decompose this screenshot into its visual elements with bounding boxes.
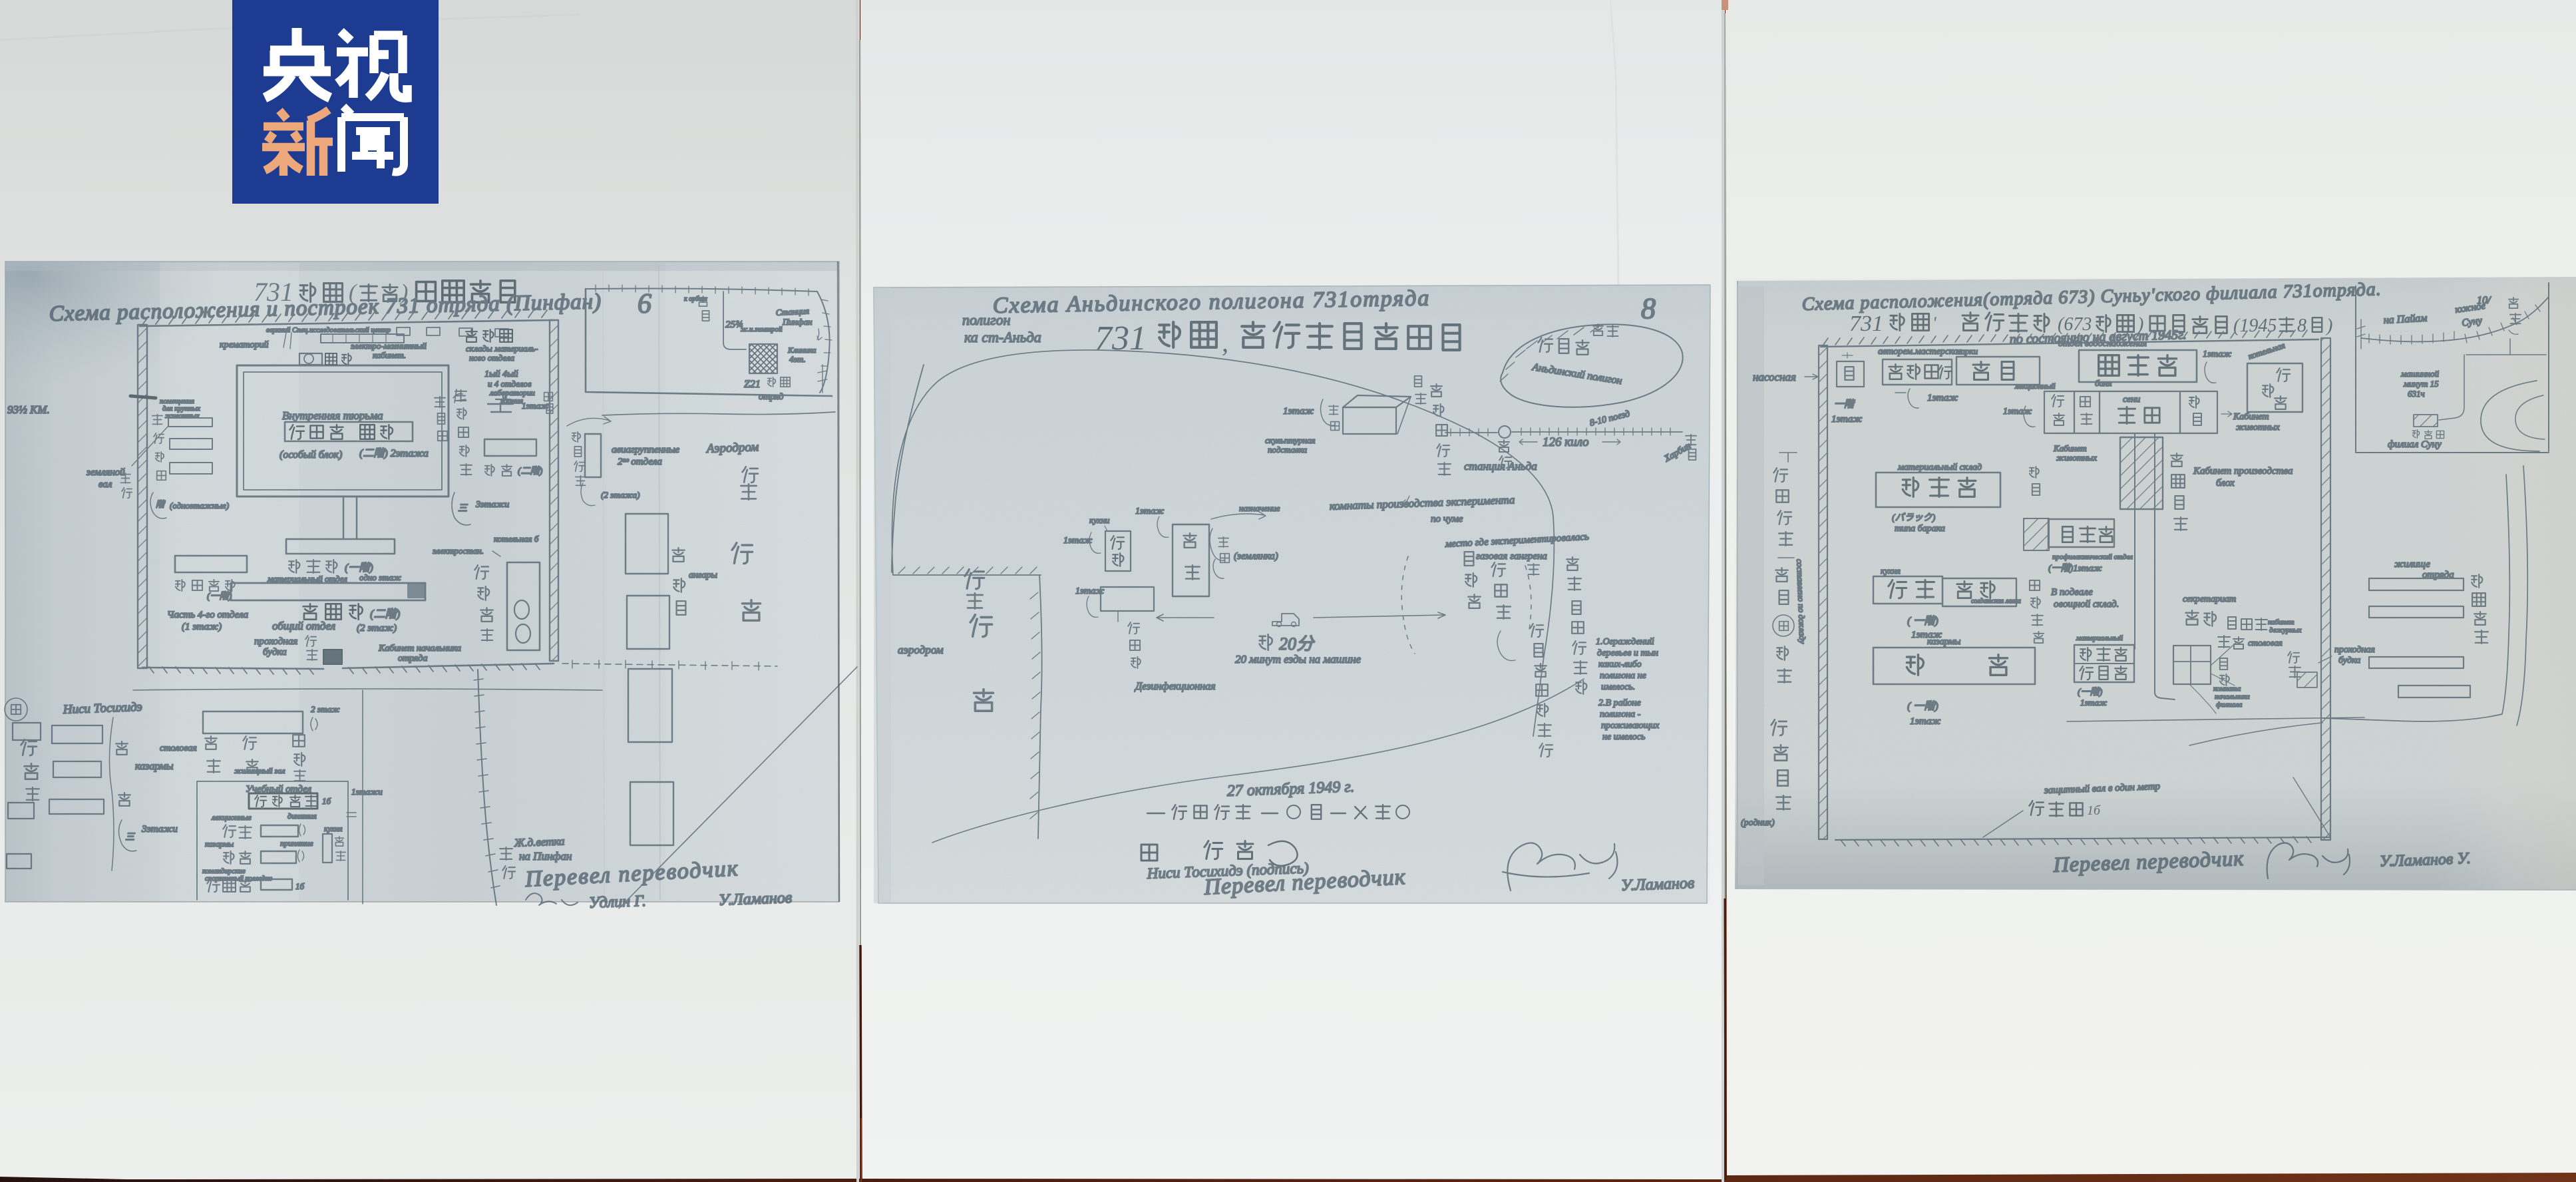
svg-text:( 一階): ( 一階) bbox=[1907, 615, 1938, 627]
svg-text:на Пайам: на Пайам bbox=[2383, 313, 2428, 326]
svg-text:жилище: жилище bbox=[2394, 559, 2430, 570]
svg-text:4эт.: 4эт. bbox=[789, 354, 806, 364]
svg-text:1этаж: 1этаж bbox=[2003, 407, 2032, 417]
svg-text:Дезинфекционная: Дезинфекционная bbox=[1134, 681, 1216, 692]
svg-text:(二階) 2этажа: (二階) 2этажа bbox=[359, 447, 429, 459]
svg-text:лекционный: лекционный bbox=[2014, 381, 2056, 391]
svg-text:( 一階): ( 一階) bbox=[1907, 700, 1938, 712]
svg-text:ного отдела: ного отдела bbox=[469, 353, 515, 363]
svg-text:полигона -: полигона - bbox=[1600, 709, 1641, 719]
svg-text:казармы: казармы bbox=[205, 839, 234, 849]
svg-text:(родник): (родник) bbox=[1741, 818, 1775, 828]
svg-text:склады материаль-: склады материаль- bbox=[466, 343, 538, 353]
svg-text:авиагруппенные: авиагруппенные bbox=[612, 445, 680, 455]
svg-text:Аэродром: Аэродром bbox=[705, 440, 759, 456]
svg-text:2.В районе: 2.В районе bbox=[1598, 698, 1641, 708]
svg-text:У.Ламанов: У.Ламанов bbox=[1620, 875, 1694, 894]
svg-text:котельная б: котельная б bbox=[494, 534, 539, 544]
svg-text:10/: 10/ bbox=[2477, 295, 2491, 306]
svg-text:филиала: филиала bbox=[2216, 701, 2243, 709]
svg-text:насосная: насосная bbox=[1753, 371, 1796, 383]
svg-text:ангары: ангары bbox=[689, 570, 717, 580]
svg-text:Пинфан: Пинфан bbox=[782, 317, 813, 327]
svg-text:Кабинет начальника: Кабинет начальника bbox=[378, 644, 461, 654]
svg-text:ж.и.зимтрой: ж.и.зимтрой bbox=[741, 325, 783, 333]
svg-text:будка: будка bbox=[2338, 656, 2360, 666]
svg-text:三: 三 bbox=[458, 504, 468, 514]
svg-text:1ый 4ый: 1ый 4ый bbox=[484, 369, 518, 379]
svg-text:3этажи: 3этажи bbox=[475, 500, 509, 510]
svg-text:,: , bbox=[1222, 327, 1228, 357]
svg-text:(二階): (二階) bbox=[518, 466, 543, 477]
svg-text:столовая: столовая bbox=[2248, 638, 2283, 648]
svg-text:Станция: Станция bbox=[775, 305, 809, 317]
svg-text:Z21: Z21 bbox=[744, 379, 761, 390]
svg-text:93½ КМ.: 93½ КМ. bbox=[7, 403, 50, 416]
svg-text:кабинет.: кабинет. bbox=[373, 350, 406, 360]
svg-text:отдел водоснабжения: отдел водоснабжения bbox=[2058, 339, 2147, 349]
svg-text:профилактический отдел: профилактический отдел bbox=[2052, 553, 2133, 561]
svg-text:кухня: кухня bbox=[324, 824, 343, 833]
svg-text:авторем.мастерская: авторем.мастерская bbox=[1878, 347, 1962, 357]
svg-text:1этаж: 1этаж bbox=[1075, 586, 1104, 596]
svg-text:126 кило: 126 кило bbox=[1543, 435, 1589, 449]
svg-text:В подвале: В подвале bbox=[2051, 587, 2093, 598]
svg-text:имелось.: имелось. bbox=[1601, 682, 1635, 692]
svg-text:631ч: 631ч bbox=[2408, 389, 2425, 399]
svg-text:столовая: столовая bbox=[160, 743, 197, 753]
svg-text:Кабинет производства: Кабинет производства bbox=[2193, 466, 2293, 477]
svg-text:животных: животных bbox=[2236, 423, 2280, 433]
svg-text:Кабинет: Кабинет bbox=[2233, 412, 2269, 422]
svg-text:комната: комната bbox=[2213, 685, 2241, 693]
svg-text:(1 этаж): (1 этаж) bbox=[182, 622, 222, 632]
svg-text:к орбит: к орбит bbox=[684, 295, 707, 303]
svg-text:(二階): (二階) bbox=[370, 608, 401, 620]
svg-text:2 этаж: 2 этаж bbox=[311, 704, 339, 714]
svg-text:жилищный зал: жилищный зал bbox=[234, 766, 285, 775]
svg-text:1этаж: 1этаж bbox=[1063, 536, 1092, 546]
svg-text:Ниси Тосихидэ: Ниси Тосихидэ bbox=[62, 700, 142, 717]
svg-text:(землянка): (землянка) bbox=[1234, 551, 1278, 562]
svg-text:деревьев и тын: деревьев и тын bbox=[1597, 648, 1658, 658]
svg-text:дежурных: дежурных bbox=[2269, 626, 2302, 634]
svg-text:парки: парки bbox=[1956, 346, 1978, 356]
svg-text:баня: баня bbox=[2095, 378, 2112, 388]
svg-text:кабинет: кабинет bbox=[2268, 618, 2295, 626]
svg-text:не имелось: не имелось bbox=[1602, 732, 1645, 742]
svg-text:аэродром: аэродром bbox=[898, 644, 944, 656]
svg-text:ка ст-Аньда: ка ст-Аньда bbox=[964, 329, 1041, 345]
svg-text:подставка: подставка bbox=[1268, 445, 1308, 455]
svg-text:1этаж: 1этаж bbox=[2203, 349, 2231, 359]
svg-text:8: 8 bbox=[1641, 292, 1656, 325]
svg-text:Клиника: Клиника bbox=[787, 345, 816, 355]
svg-text:проходная: проходная bbox=[2334, 645, 2375, 655]
svg-text:1этаж: 1этаж bbox=[1283, 406, 1314, 417]
svg-text:1этаж: 1этаж bbox=[1831, 414, 1862, 425]
svg-text:(一階): (一階) bbox=[207, 591, 232, 602]
svg-text:секретариат: секретариат bbox=[2183, 594, 2236, 604]
svg-text:электростан.: электростан. bbox=[433, 546, 484, 556]
svg-text:сени: сени bbox=[2123, 395, 2140, 405]
svg-text:一階: 一階 bbox=[1834, 399, 1855, 410]
svg-text:6: 6 bbox=[638, 289, 651, 319]
svg-text:животных: животных bbox=[2056, 453, 2097, 463]
svg-text:по чуме: по чуме bbox=[1431, 514, 1463, 524]
svg-text:2ⁿᵒ отдела: 2ⁿᵒ отдела bbox=[618, 457, 662, 467]
svg-text:1этаж: 1этаж bbox=[2080, 697, 2107, 707]
svg-text:крематорий: крематорий bbox=[220, 340, 268, 350]
svg-text:20分: 20分 bbox=[1279, 634, 1315, 654]
svg-text:1этаж: 1этаж bbox=[1910, 716, 1940, 727]
svg-text:общий отдел: общий отдел bbox=[272, 620, 335, 632]
svg-text:материальный: материальный bbox=[2076, 634, 2123, 642]
svg-text:1этаж: 1этаж bbox=[1135, 506, 1164, 516]
svg-text:Удлин Г.: Удлин Г. bbox=[588, 892, 646, 912]
svg-text:кухня: кухня bbox=[1881, 566, 1901, 576]
svg-text:скульптурная: скульптурная bbox=[1265, 435, 1316, 445]
svg-text:1б: 1б bbox=[322, 796, 331, 806]
svg-text:принятие: принятие bbox=[280, 839, 313, 848]
svg-text:3этажи: 3этажи bbox=[141, 824, 178, 835]
svg-text:三: 三 bbox=[125, 833, 135, 843]
svg-text:(一階): (一階) bbox=[2078, 687, 2103, 697]
svg-text:солдатская лавка: солдатская лавка bbox=[1971, 598, 2021, 605]
svg-text:блох: блох bbox=[2216, 478, 2235, 489]
svg-text:(особый блок): (особый блок) bbox=[279, 449, 342, 461]
svg-text:отряда: отряда bbox=[398, 654, 428, 664]
svg-text:минут 15: минут 15 bbox=[2403, 379, 2439, 389]
svg-text:проживающих: проживающих bbox=[1601, 721, 1660, 731]
svg-text:электро-магнитный: электро-магнитный bbox=[351, 341, 427, 351]
svg-text:полигона не: полигона не bbox=[1600, 671, 1646, 681]
svg-text:назначение: назначение bbox=[1239, 503, 1280, 513]
svg-text:731: 731 bbox=[1849, 311, 1883, 336]
svg-text:1б: 1б bbox=[295, 881, 305, 891]
svg-text:': ' bbox=[1932, 313, 1936, 333]
svg-text:1б: 1б bbox=[2087, 803, 2101, 818]
svg-text:(2 этаж): (2 этаж) bbox=[357, 623, 397, 634]
svg-text:казармы: казармы bbox=[135, 761, 174, 772]
svg-text:будка: будка bbox=[263, 647, 287, 658]
svg-text:животных: животных bbox=[165, 412, 200, 420]
svg-text:1этаж: 1этаж bbox=[522, 401, 548, 411]
svg-text:вал: вал bbox=[98, 479, 112, 490]
svg-text:овощной склад.: овощной склад. bbox=[2054, 599, 2119, 610]
svg-text:): ) bbox=[2325, 315, 2332, 336]
svg-text:1этаж: 1этаж bbox=[1927, 393, 1958, 403]
svg-text:(одноэтажные): (одноэтажные) bbox=[170, 500, 229, 510]
svg-text:Ж.д.ветка: Ж.д.ветка bbox=[513, 835, 564, 849]
svg-text:материальный склад: материальный склад bbox=[1897, 463, 1982, 473]
svg-text:У.Ламанов У.: У.Ламанов У. bbox=[2379, 850, 2471, 871]
svg-text:проходная: проходная bbox=[254, 636, 297, 647]
svg-text:и 4 отделов: и 4 отделов bbox=[488, 379, 532, 389]
svg-text:полигон: полигон bbox=[962, 311, 1011, 328]
svg-text:Кабинет: Кабинет bbox=[2053, 443, 2087, 453]
svg-text:(バラック): (バラック) bbox=[1892, 512, 1936, 523]
svg-text:20 минут езды на машине: 20 минут езды на машине bbox=[1235, 653, 1361, 666]
svg-text:начальника: начальника bbox=[2215, 693, 2250, 701]
svg-text:одно этаж: одно этаж bbox=[359, 572, 401, 582]
svg-text:отряд: отряд bbox=[759, 392, 784, 402]
svg-text:階: 階 bbox=[156, 499, 166, 509]
svg-text:(一階)1этаж: (一階)1этаж bbox=[2048, 563, 2102, 574]
svg-text:газовая гангрена: газовая гангрена bbox=[1476, 551, 1547, 562]
svg-text:филиал Суну: филиал Суну bbox=[2388, 439, 2442, 450]
svg-text:кухни: кухни bbox=[1089, 515, 1110, 525]
svg-text:1этажи: 1этажи bbox=[351, 787, 383, 797]
svg-text:станция Аньда: станция Аньда bbox=[1464, 460, 1537, 473]
svg-text:казармы: казармы bbox=[1927, 637, 1960, 647]
svg-text:Внутренняя тюрьма: Внутренняя тюрьма bbox=[282, 409, 383, 422]
svg-text:1.Ограждений: 1.Ограждений bbox=[1596, 637, 1654, 647]
svg-text:каких-либо: каких-либо bbox=[1598, 660, 1642, 670]
svg-text:динятия: динятия bbox=[287, 811, 317, 821]
svg-text:Часть 4-го отдела: Часть 4-го отдела bbox=[167, 610, 248, 620]
svg-text:земляной: земляной bbox=[86, 467, 125, 478]
svg-text:типа барака: типа барака bbox=[1895, 524, 1945, 534]
svg-text:верхний Спец.исследовательский: верхний Спец.исследовательский центр bbox=[266, 326, 391, 334]
svg-text:машинной: машинной bbox=[2400, 369, 2440, 379]
svg-text:У.Ламанов: У.Ламанов bbox=[718, 889, 792, 909]
svg-text:(2 этажа): (2 этажа) bbox=[601, 490, 640, 500]
svg-text:лекционные: лекционные bbox=[211, 813, 252, 822]
svg-text:на Пинфан: на Пинфан bbox=[519, 850, 572, 863]
